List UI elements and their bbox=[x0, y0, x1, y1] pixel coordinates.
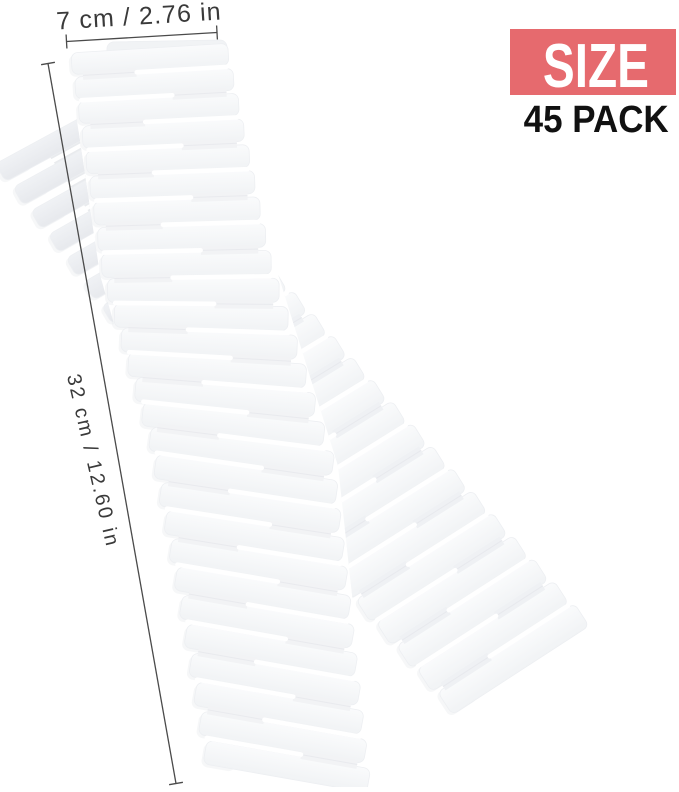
svg-text:7 cm / 2.76 in: 7 cm / 2.76 in bbox=[56, 0, 223, 36]
svg-text:32 cm / 12.60 in: 32 cm / 12.60 in bbox=[62, 372, 123, 550]
svg-text:45 PACK: 45 PACK bbox=[524, 98, 670, 141]
svg-text:SIZE: SIZE bbox=[543, 31, 649, 100]
